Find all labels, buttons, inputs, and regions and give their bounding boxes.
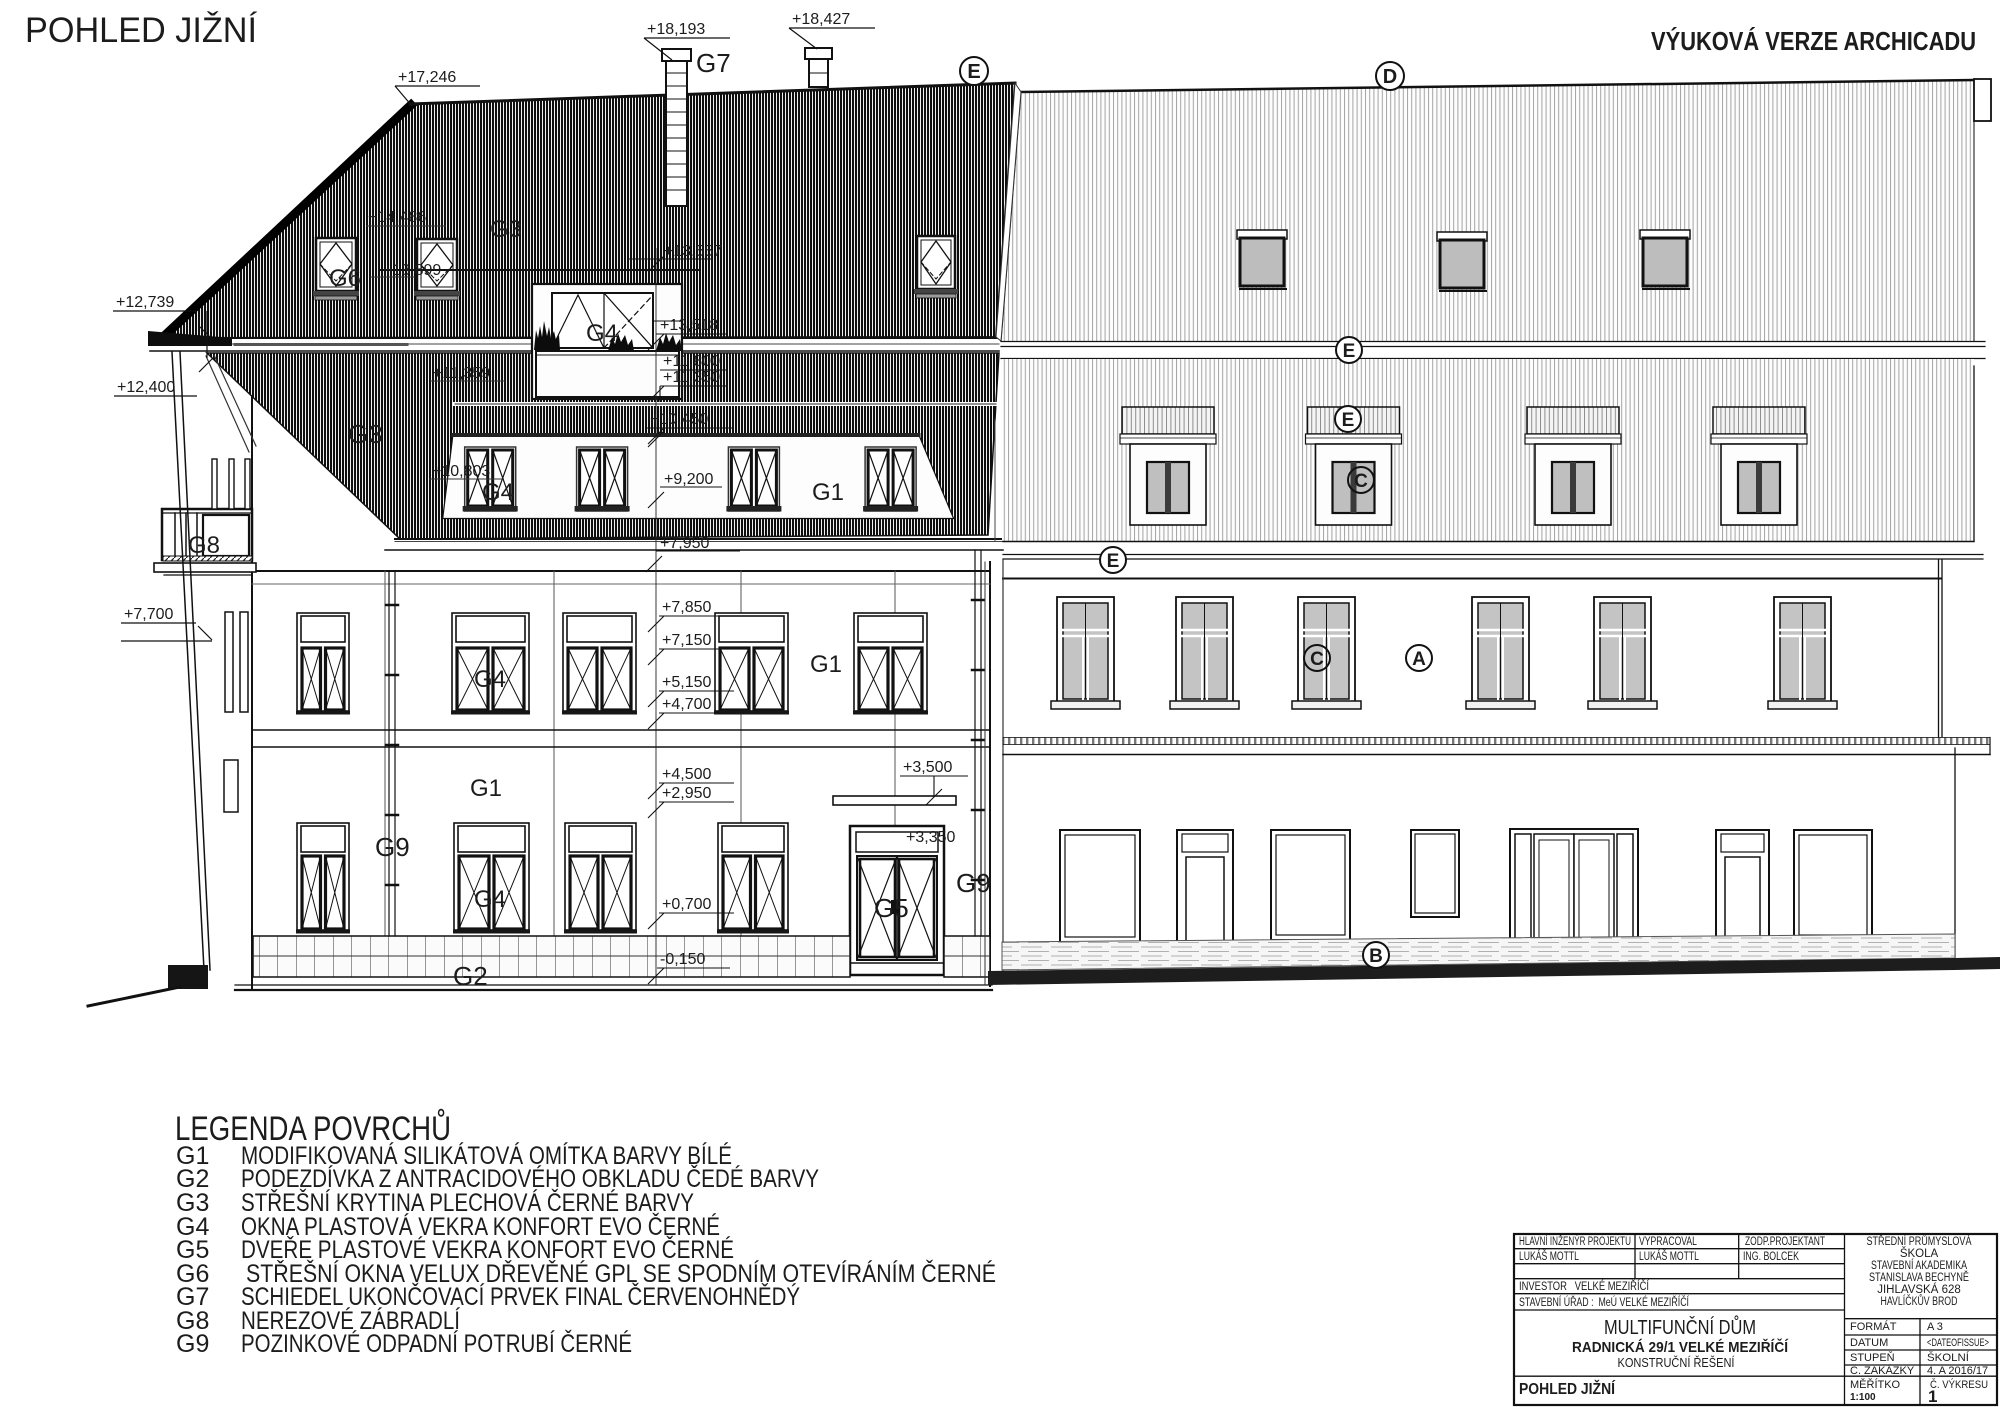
- svg-text:G3: G3: [348, 419, 383, 449]
- svg-text:LUKÁŠ MOTTL: LUKÁŠ MOTTL: [1519, 1250, 1579, 1263]
- svg-text:POHLED JIŽNÍ: POHLED JIŽNÍ: [25, 11, 257, 50]
- svg-text:STANISLAVA BECHYNĚ: STANISLAVA BECHYNĚ: [1869, 1271, 1969, 1284]
- svg-text:+18,427: +18,427: [792, 11, 850, 28]
- svg-text:G2: G2: [453, 961, 488, 991]
- svg-text:POHLED JIŽNÍ: POHLED JIŽNÍ: [1519, 1379, 1615, 1398]
- svg-text:+13,899: +13,899: [383, 262, 441, 279]
- svg-text:G1: G1: [470, 775, 502, 802]
- svg-text:JIHLAVSKÁ 628: JIHLAVSKÁ 628: [1877, 1283, 1961, 1296]
- svg-text:HLAVNÍ INŽENÝR PROJEKTU: HLAVNÍ INŽENÝR PROJEKTU: [1519, 1235, 1631, 1248]
- svg-text:B: B: [1369, 946, 1383, 967]
- svg-text:+11,359: +11,359: [433, 365, 490, 382]
- svg-text:+7,700: +7,700: [124, 606, 173, 623]
- svg-text:C: C: [1310, 649, 1324, 670]
- svg-text:+10,450: +10,450: [650, 411, 708, 428]
- svg-text:+3,500: +3,500: [903, 759, 952, 776]
- svg-text:+11,800: +11,800: [663, 353, 720, 370]
- svg-text:+17,246: +17,246: [398, 69, 456, 86]
- svg-text:G7: G7: [696, 48, 731, 78]
- svg-text:INVESTOR VELKÉ MEZIŘÍČÍ: INVESTOR VELKÉ MEZIŘÍČÍ: [1519, 1280, 1650, 1293]
- svg-text:G9: G9: [956, 868, 991, 898]
- svg-text:ŠKOLNÍ: ŠKOLNÍ: [1927, 1351, 1970, 1364]
- svg-text:+13,518: +13,518: [660, 317, 718, 334]
- svg-text:E: E: [1343, 341, 1356, 362]
- svg-text:G4: G4: [482, 479, 514, 506]
- svg-text:VYPRACOVAL: VYPRACOVAL: [1639, 1236, 1697, 1248]
- svg-text:RADNICKÁ 29/1 VELKÉ MEZIŘÍČÍ: RADNICKÁ 29/1 VELKÉ MEZIŘÍČÍ: [1572, 1338, 1789, 1356]
- svg-text:+4,700: +4,700: [662, 696, 711, 713]
- svg-text:C: C: [1354, 471, 1368, 492]
- svg-text:+3,350: +3,350: [906, 829, 955, 846]
- svg-text:+13,557: +13,557: [664, 243, 722, 260]
- svg-text:1:100: 1:100: [1850, 1392, 1876, 1403]
- svg-text:G5: G5: [874, 893, 909, 923]
- svg-text:ŠKOLA: ŠKOLA: [1900, 1247, 1939, 1260]
- svg-text:G6: G6: [329, 265, 361, 292]
- svg-text:G8: G8: [188, 532, 220, 559]
- svg-text:+14,486: +14,486: [368, 209, 426, 226]
- svg-text:+12,739: +12,739: [116, 294, 174, 311]
- svg-text:STAVEBNÍ AKADEMIKA: STAVEBNÍ AKADEMIKA: [1871, 1259, 1967, 1272]
- svg-text:G4: G4: [474, 886, 506, 913]
- svg-text:Č. ZAKÁZKY: Č. ZAKÁZKY: [1850, 1364, 1915, 1377]
- svg-text:STAVEBNÍ ÚŘAD : MeÚ VELKÉ MEZ: STAVEBNÍ ÚŘAD : MeÚ VELKÉ MEZIŘÍČÍ: [1519, 1296, 1690, 1309]
- svg-text:G4: G4: [474, 666, 506, 693]
- svg-text:G9: G9: [375, 832, 410, 862]
- svg-text:+0,700: +0,700: [662, 896, 711, 913]
- svg-text:+2,950: +2,950: [662, 785, 711, 802]
- svg-text:+7,950: +7,950: [660, 535, 709, 552]
- svg-text:+4,500: +4,500: [662, 766, 711, 783]
- svg-text:+9,200: +9,200: [664, 471, 713, 488]
- svg-text:DATUM: DATUM: [1850, 1337, 1888, 1349]
- svg-text:1: 1: [1928, 1387, 1937, 1406]
- svg-text:D: D: [1383, 66, 1397, 88]
- svg-text:G3: G3: [490, 216, 522, 243]
- svg-text:HAVLÍČKŮV BROD: HAVLÍČKŮV BROD: [1881, 1295, 1958, 1308]
- svg-text:KONSTRUČNÍ ŘEŠENÍ: KONSTRUČNÍ ŘEŠENÍ: [1618, 1355, 1735, 1370]
- svg-text:Č. VÝKRESU: Č. VÝKRESU: [1930, 1378, 1988, 1391]
- svg-text:LUKÁŠ MOTTL: LUKÁŠ MOTTL: [1639, 1250, 1699, 1263]
- svg-text:ZODP.PROJEKTANT: ZODP.PROJEKTANT: [1745, 1236, 1825, 1248]
- svg-text:FORMÁT: FORMÁT: [1850, 1320, 1897, 1333]
- svg-text:VÝUKOVÁ VERZE ARCHICADU: VÝUKOVÁ VERZE ARCHICADU: [1651, 26, 1976, 56]
- svg-text:ING. BOLCEK: ING. BOLCEK: [1743, 1251, 1799, 1263]
- svg-text:POZINKOVÉ ODPADNÍ POTRUBÍ ČERN: POZINKOVÉ ODPADNÍ POTRUBÍ ČERNÉ: [241, 1329, 632, 1358]
- svg-text:+10,803: +10,803: [432, 463, 490, 480]
- svg-text:+5,150: +5,150: [662, 674, 711, 691]
- svg-text:E: E: [1107, 551, 1120, 572]
- svg-text:E: E: [967, 61, 980, 83]
- svg-text:-0,150: -0,150: [660, 951, 705, 968]
- svg-text:<DATEOFISSUE>: <DATEOFISSUE>: [1927, 1337, 1989, 1349]
- svg-text:+7,150: +7,150: [662, 632, 711, 649]
- svg-text:STŘEDNÍ PRŮMYSLOVÁ: STŘEDNÍ PRŮMYSLOVÁ: [1867, 1235, 1972, 1248]
- svg-text:G1: G1: [810, 651, 842, 678]
- svg-text:+11,350: +11,350: [663, 369, 720, 386]
- svg-text:4. A 2016/17: 4. A 2016/17: [1927, 1365, 1988, 1377]
- svg-text:+18,193: +18,193: [647, 21, 705, 38]
- svg-text:G9: G9: [176, 1330, 209, 1358]
- svg-text:A 3: A 3: [1927, 1321, 1943, 1333]
- svg-text:E: E: [1342, 410, 1355, 431]
- svg-text:+7,850: +7,850: [662, 599, 711, 616]
- svg-text:+12,400: +12,400: [117, 379, 175, 396]
- svg-text:STUPEŇ: STUPEŇ: [1850, 1351, 1895, 1364]
- svg-text:A: A: [1412, 649, 1426, 670]
- svg-text:MULTIFUNČNÍ DŮM: MULTIFUNČNÍ DŮM: [1604, 1315, 1756, 1339]
- svg-text:G1: G1: [812, 479, 844, 506]
- svg-text:G4: G4: [586, 320, 618, 347]
- svg-text:MĚŘÍTKO: MĚŘÍTKO: [1850, 1378, 1901, 1391]
